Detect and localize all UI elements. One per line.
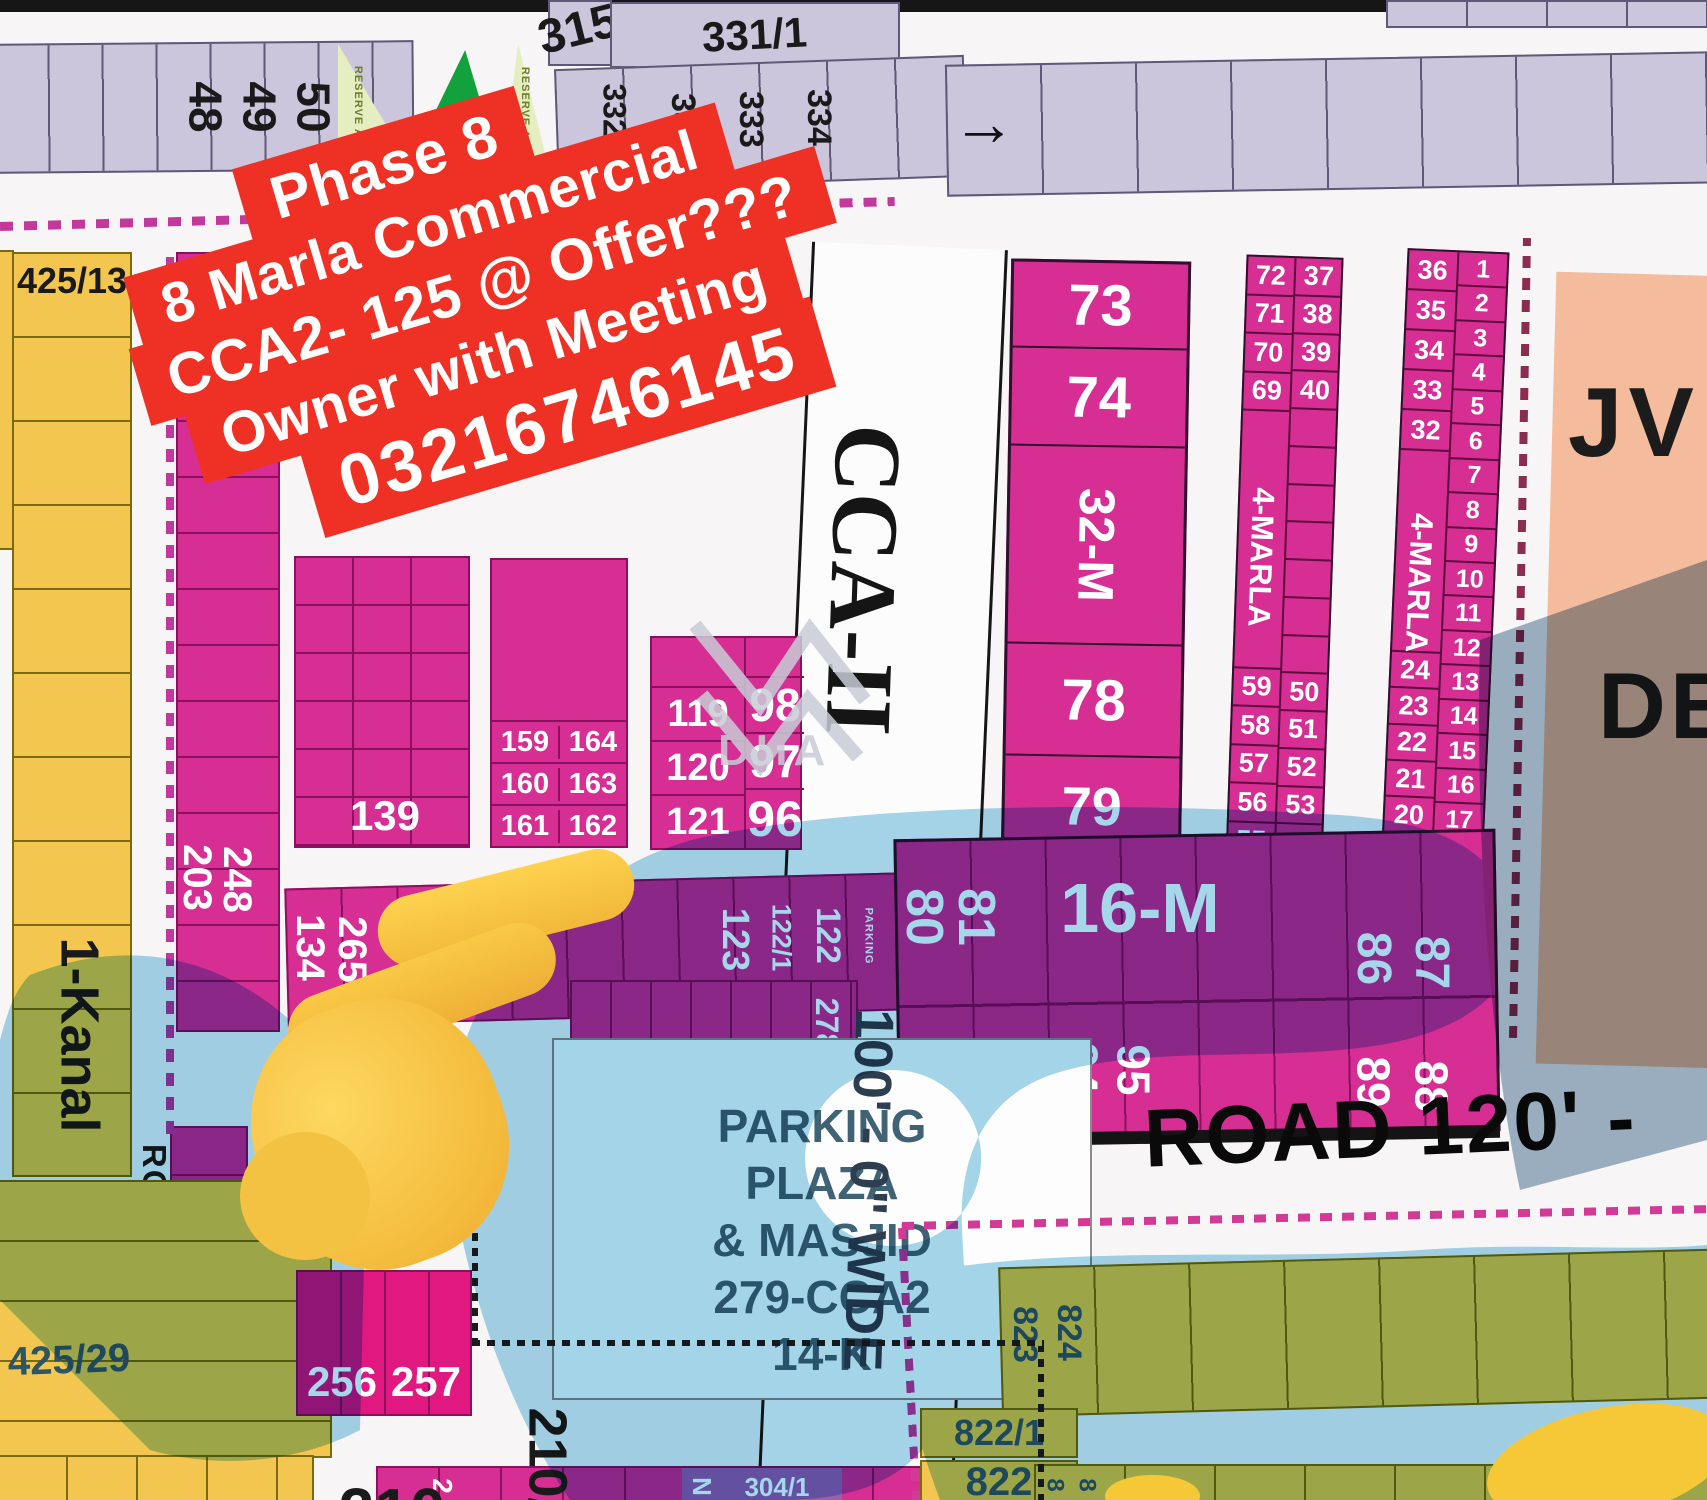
plot-map-canvas: 48 49 50 RESERVE AREA RESERVE AREA 315 3…	[0, 0, 1707, 1500]
finger-wrist	[240, 1132, 370, 1260]
